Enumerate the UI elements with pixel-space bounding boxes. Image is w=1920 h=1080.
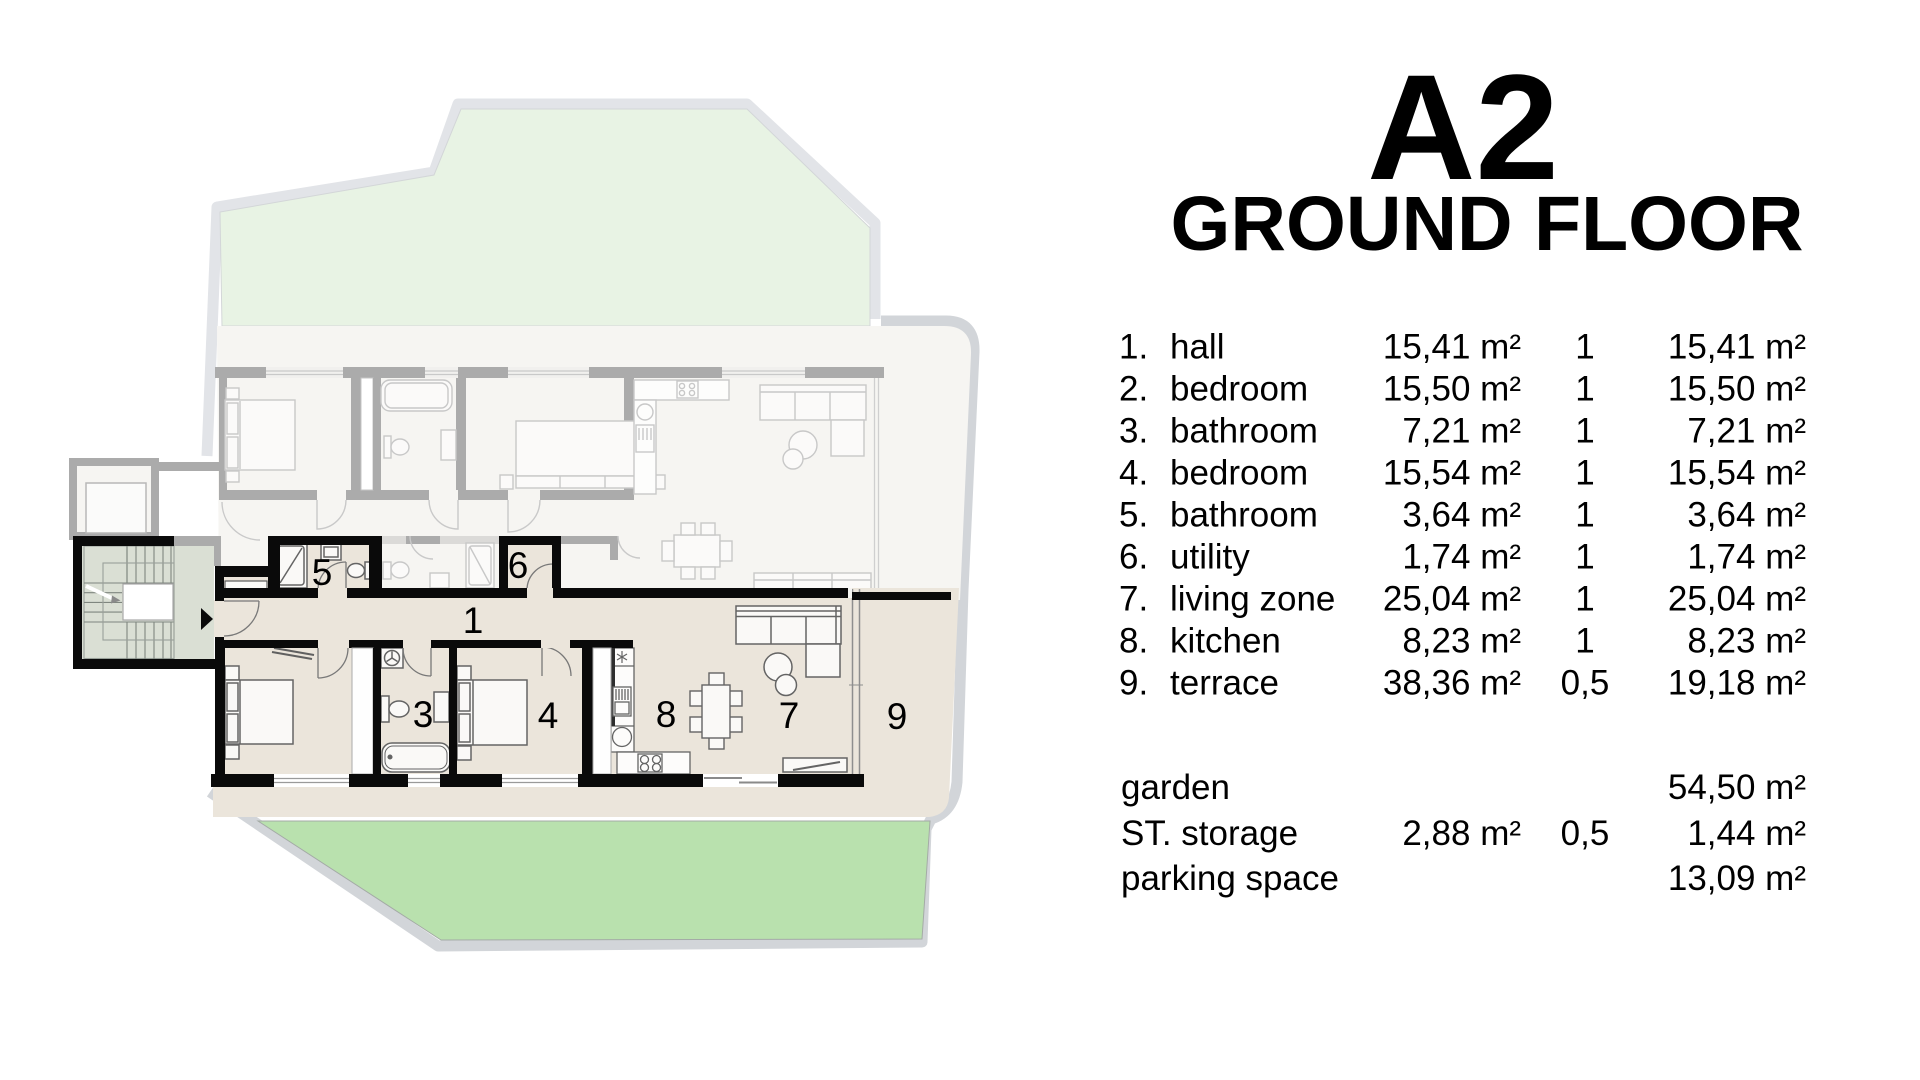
svg-text:8,23 m²: 8,23 m² bbox=[1687, 622, 1806, 661]
svg-text:bathroom: bathroom bbox=[1170, 496, 1318, 535]
svg-text:1: 1 bbox=[1575, 370, 1594, 409]
svg-text:7: 7 bbox=[779, 695, 800, 736]
svg-text:54,50 m²: 54,50 m² bbox=[1668, 768, 1806, 807]
svg-text:25,04 m²: 25,04 m² bbox=[1383, 580, 1521, 619]
svg-text:7,21 m²: 7,21 m² bbox=[1402, 412, 1521, 451]
svg-text:1: 1 bbox=[1575, 538, 1594, 577]
svg-text:5.: 5. bbox=[1119, 496, 1148, 535]
svg-text:bathroom: bathroom bbox=[1170, 412, 1318, 451]
svg-text:terrace: terrace bbox=[1170, 664, 1279, 703]
svg-text:bedroom: bedroom bbox=[1170, 454, 1308, 493]
svg-text:8: 8 bbox=[656, 694, 677, 735]
svg-text:6: 6 bbox=[508, 545, 529, 586]
svg-text:7,21 m²: 7,21 m² bbox=[1687, 412, 1806, 451]
svg-text:15,50 m²: 15,50 m² bbox=[1383, 370, 1521, 409]
svg-text:15,41 m²: 15,41 m² bbox=[1383, 328, 1521, 367]
svg-text:1: 1 bbox=[463, 600, 484, 641]
svg-text:15,41 m²: 15,41 m² bbox=[1668, 328, 1806, 367]
svg-text:6.: 6. bbox=[1119, 538, 1148, 577]
svg-text:garden: garden bbox=[1121, 768, 1230, 807]
svg-text:7.: 7. bbox=[1119, 580, 1148, 619]
svg-text:15,54 m²: 15,54 m² bbox=[1383, 454, 1521, 493]
svg-text:1,74 m²: 1,74 m² bbox=[1687, 538, 1806, 577]
svg-text:1,74 m²: 1,74 m² bbox=[1402, 538, 1521, 577]
svg-text:2,88 m²: 2,88 m² bbox=[1402, 814, 1521, 853]
svg-text:ST. storage: ST. storage bbox=[1121, 814, 1298, 853]
svg-text:GROUND FLOOR: GROUND FLOOR bbox=[1170, 181, 1803, 267]
svg-text:1: 1 bbox=[1575, 496, 1594, 535]
svg-text:0,5: 0,5 bbox=[1561, 814, 1610, 853]
svg-text:8,23 m²: 8,23 m² bbox=[1402, 622, 1521, 661]
svg-text:13,09 m²: 13,09 m² bbox=[1668, 859, 1806, 898]
svg-text:15,54 m²: 15,54 m² bbox=[1668, 454, 1806, 493]
svg-text:0,5: 0,5 bbox=[1561, 664, 1610, 703]
svg-text:kitchen: kitchen bbox=[1170, 622, 1281, 661]
svg-text:3,64 m²: 3,64 m² bbox=[1402, 496, 1521, 535]
svg-text:1: 1 bbox=[1575, 454, 1594, 493]
svg-text:2.: 2. bbox=[1119, 370, 1148, 409]
svg-text:living zone: living zone bbox=[1170, 580, 1335, 619]
svg-text:3,64 m²: 3,64 m² bbox=[1687, 496, 1806, 535]
svg-text:9: 9 bbox=[887, 696, 908, 737]
svg-text:1: 1 bbox=[1575, 328, 1594, 367]
svg-text:4: 4 bbox=[538, 695, 559, 736]
svg-text:bedroom: bedroom bbox=[1170, 370, 1308, 409]
svg-text:19,18 m²: 19,18 m² bbox=[1668, 664, 1806, 703]
svg-text:4.: 4. bbox=[1119, 454, 1148, 493]
svg-text:1.: 1. bbox=[1119, 328, 1148, 367]
svg-text:5: 5 bbox=[312, 552, 333, 593]
svg-text:utility: utility bbox=[1170, 538, 1250, 577]
svg-text:hall: hall bbox=[1170, 328, 1224, 367]
svg-text:8.: 8. bbox=[1119, 622, 1148, 661]
svg-text:25,04 m²: 25,04 m² bbox=[1668, 580, 1806, 619]
svg-text:9.: 9. bbox=[1119, 664, 1148, 703]
svg-text:38,36 m²: 38,36 m² bbox=[1383, 664, 1521, 703]
svg-text:1: 1 bbox=[1575, 622, 1594, 661]
svg-text:3.: 3. bbox=[1119, 412, 1148, 451]
svg-text:1,44 m²: 1,44 m² bbox=[1687, 814, 1806, 853]
svg-text:1: 1 bbox=[1575, 412, 1594, 451]
svg-text:3: 3 bbox=[413, 694, 434, 735]
svg-text:parking space: parking space bbox=[1121, 859, 1339, 898]
svg-text:15,50 m²: 15,50 m² bbox=[1668, 370, 1806, 409]
svg-text:1: 1 bbox=[1575, 580, 1594, 619]
